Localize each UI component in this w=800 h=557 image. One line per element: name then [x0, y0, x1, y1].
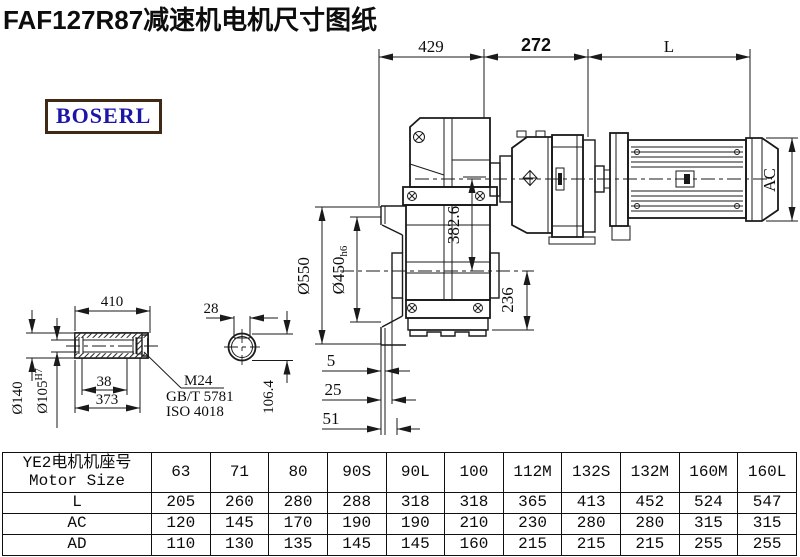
dim-5-label: 5 — [327, 351, 336, 370]
note-m24: M24 — [184, 373, 213, 389]
dimension-value-cell: 110 — [152, 535, 211, 556]
motor-size-header-en: Motor Size — [3, 473, 151, 491]
dimension-value-cell: 288 — [327, 493, 386, 514]
bolt-icon — [408, 192, 417, 201]
dimension-value-cell: 318 — [386, 493, 445, 514]
drawing-page: FAF127R87减速机电机尺寸图纸 BOSERL — [0, 0, 800, 557]
column-header: 90S — [327, 453, 386, 493]
dim-450-main: Ø450 — [329, 257, 348, 295]
column-header: 160L — [738, 453, 797, 493]
column-header: 71 — [210, 453, 269, 493]
dim-272-label: 272 — [521, 35, 551, 55]
dim-450h6-label: Ø450h6 — [329, 245, 350, 294]
dim-106.4-label: 106.4 — [261, 380, 277, 414]
dim-429-label: 429 — [418, 37, 444, 56]
dimension-value-cell: 365 — [503, 493, 562, 514]
dim-AC-label: AC — [760, 168, 779, 192]
dim-236: 236 — [492, 271, 534, 330]
dimension-value-cell: 190 — [327, 514, 386, 535]
dim-diameter-450h6: Ø450h6 — [329, 217, 381, 322]
row-label: L — [3, 493, 152, 514]
dim-38-label: 38 — [97, 374, 112, 390]
dim-L-label: L — [664, 37, 674, 56]
dimension-value-cell: 190 — [386, 514, 445, 535]
bolt-icon — [476, 192, 485, 201]
motor — [610, 133, 778, 240]
dims-5-25-51: 5 25 51 — [322, 351, 420, 429]
note-iso-4018: ISO 4018 — [166, 404, 224, 420]
dimension-value-cell: 230 — [503, 514, 562, 535]
dim-236-label: 236 — [498, 287, 517, 313]
dimension-value-cell: 280 — [269, 493, 328, 514]
dimension-value-cell: 215 — [621, 535, 680, 556]
dimension-value-cell: 452 — [621, 493, 680, 514]
bolt-icon — [474, 304, 483, 313]
column-header: 132S — [562, 453, 621, 493]
dimension-value-cell: 135 — [269, 535, 328, 556]
table-row: AC120145170190190210230280280315315 — [3, 514, 797, 535]
dim-105-sup: H7 — [34, 368, 45, 380]
dim-550-label: Ø550 — [294, 257, 313, 295]
table-header-row: YE2电机机座号 Motor Size 63718090S90L100112M1… — [3, 453, 797, 493]
dimension-value-cell: 413 — [562, 493, 621, 514]
note-gbt-5781: GB/T 5781 — [166, 389, 234, 405]
dim-105-main: Ø105 — [35, 380, 51, 413]
dimension-value-cell: 315 — [738, 514, 797, 535]
dim-51-label: 51 — [323, 409, 340, 428]
dimension-value-cell: 318 — [445, 493, 504, 514]
table-row: L205260280288318318365413452524547 — [3, 493, 797, 514]
dim-AC: AC — [760, 138, 798, 221]
bolt-icon — [414, 132, 425, 143]
column-header: 132M — [621, 453, 680, 493]
column-header: 100 — [445, 453, 504, 493]
dim-25-label: 25 — [325, 380, 342, 399]
dimension-value-cell: 280 — [621, 514, 680, 535]
dimension-value-cell: 215 — [562, 535, 621, 556]
column-header: 160M — [679, 453, 738, 493]
column-header: 63 — [152, 453, 211, 493]
bolt-icon — [408, 304, 417, 313]
dimension-value-cell: 255 — [738, 535, 797, 556]
dimension-value-cell: 280 — [562, 514, 621, 535]
dimension-value-cell: 130 — [210, 535, 269, 556]
dim-382.6-label: 382.6 — [444, 206, 463, 244]
input-adapter — [490, 131, 610, 244]
dim-410-label: 410 — [101, 294, 124, 310]
motor-size-header: YE2电机机座号 Motor Size — [3, 453, 152, 493]
dimension-value-cell: 145 — [327, 535, 386, 556]
dim-105H7-label: Ø105H7 — [34, 368, 51, 414]
shaft-detail: 410 Ø140 Ø105H7 38 373 M24 — [10, 294, 234, 428]
bolt-diamond-icon — [523, 171, 537, 186]
dimension-value-cell: 145 — [210, 514, 269, 535]
dimension-value-cell: 210 — [445, 514, 504, 535]
dim-373-label: 373 — [96, 392, 119, 408]
dimension-value-cell: 170 — [269, 514, 328, 535]
dim-28-label: 28 — [204, 301, 219, 317]
dimension-value-cell: 260 — [210, 493, 269, 514]
dimension-value-cell: 120 — [152, 514, 211, 535]
table-row: AD110130135145145160215215215255255 — [3, 535, 797, 556]
dimension-value-cell: 524 — [679, 493, 738, 514]
dimension-value-cell: 255 — [679, 535, 738, 556]
output-flange — [381, 206, 406, 435]
dimension-value-cell: 215 — [503, 535, 562, 556]
dimension-value-cell: 547 — [738, 493, 797, 514]
column-header: 112M — [503, 453, 562, 493]
column-header: 90L — [386, 453, 445, 493]
motor-size-header-cn: YE2电机机座号 — [3, 455, 151, 473]
dimension-value-cell: 315 — [679, 514, 738, 535]
column-header: 80 — [269, 453, 328, 493]
row-label: AD — [3, 535, 152, 556]
dimension-value-cell: 145 — [386, 535, 445, 556]
motor-size-table: YE2电机机座号 Motor Size 63718090S90L100112M1… — [2, 452, 797, 556]
dim-140-label: Ø140 — [10, 381, 26, 414]
row-label: AC — [3, 514, 152, 535]
dimension-value-cell: 160 — [445, 535, 504, 556]
dim-450-suffix: h6 — [338, 245, 350, 257]
dimension-value-cell: 205 — [152, 493, 211, 514]
center-lines — [66, 179, 772, 365]
